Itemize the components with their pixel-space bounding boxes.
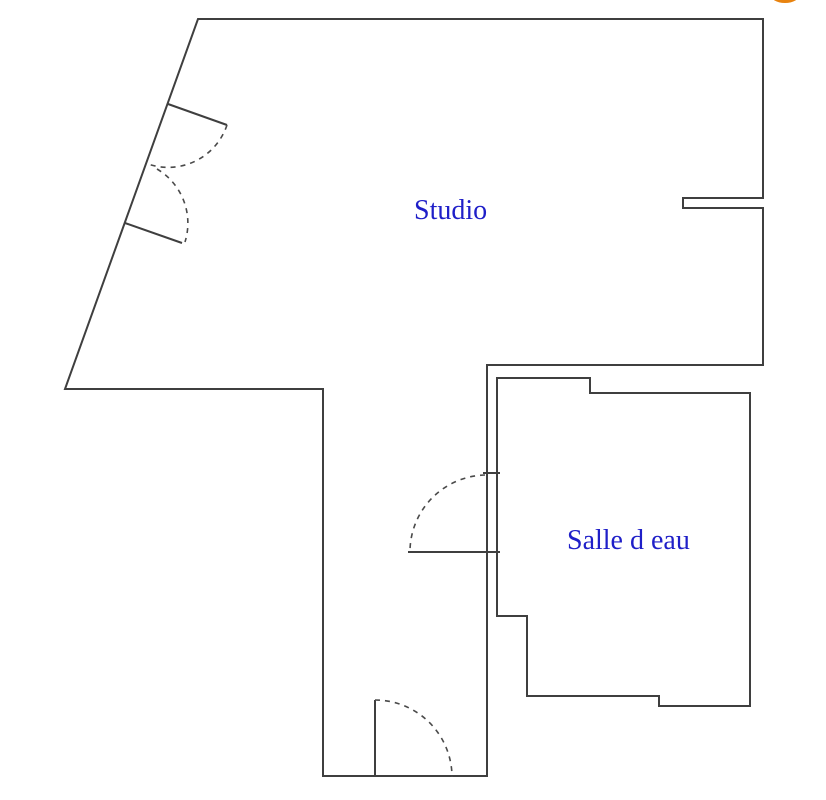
outer-wall-outline bbox=[65, 19, 763, 776]
salle-d-eau-room-label: Salle d eau bbox=[567, 525, 690, 556]
studio-room-label: Studio bbox=[414, 195, 487, 226]
salle-d-eau-door-swing-arc bbox=[410, 475, 485, 550]
studio-entry-door-upper-leaf bbox=[168, 104, 227, 125]
corridor-bottom-door-swing-arc bbox=[375, 700, 452, 777]
studio-entry-door-lower-leaf bbox=[125, 223, 182, 243]
floorplan-canvas: Studio Salle d eau bbox=[0, 0, 826, 800]
floorplan-page: Studio Salle d eau bbox=[0, 0, 826, 800]
logo-dot-icon bbox=[770, 0, 800, 3]
studio-entry-door-lower-swing-arc bbox=[157, 169, 188, 242]
studio-entry-door-upper-swing-arc bbox=[148, 125, 227, 167]
walls-layer bbox=[65, 19, 763, 776]
labels-layer: Studio Salle d eau bbox=[414, 195, 690, 556]
